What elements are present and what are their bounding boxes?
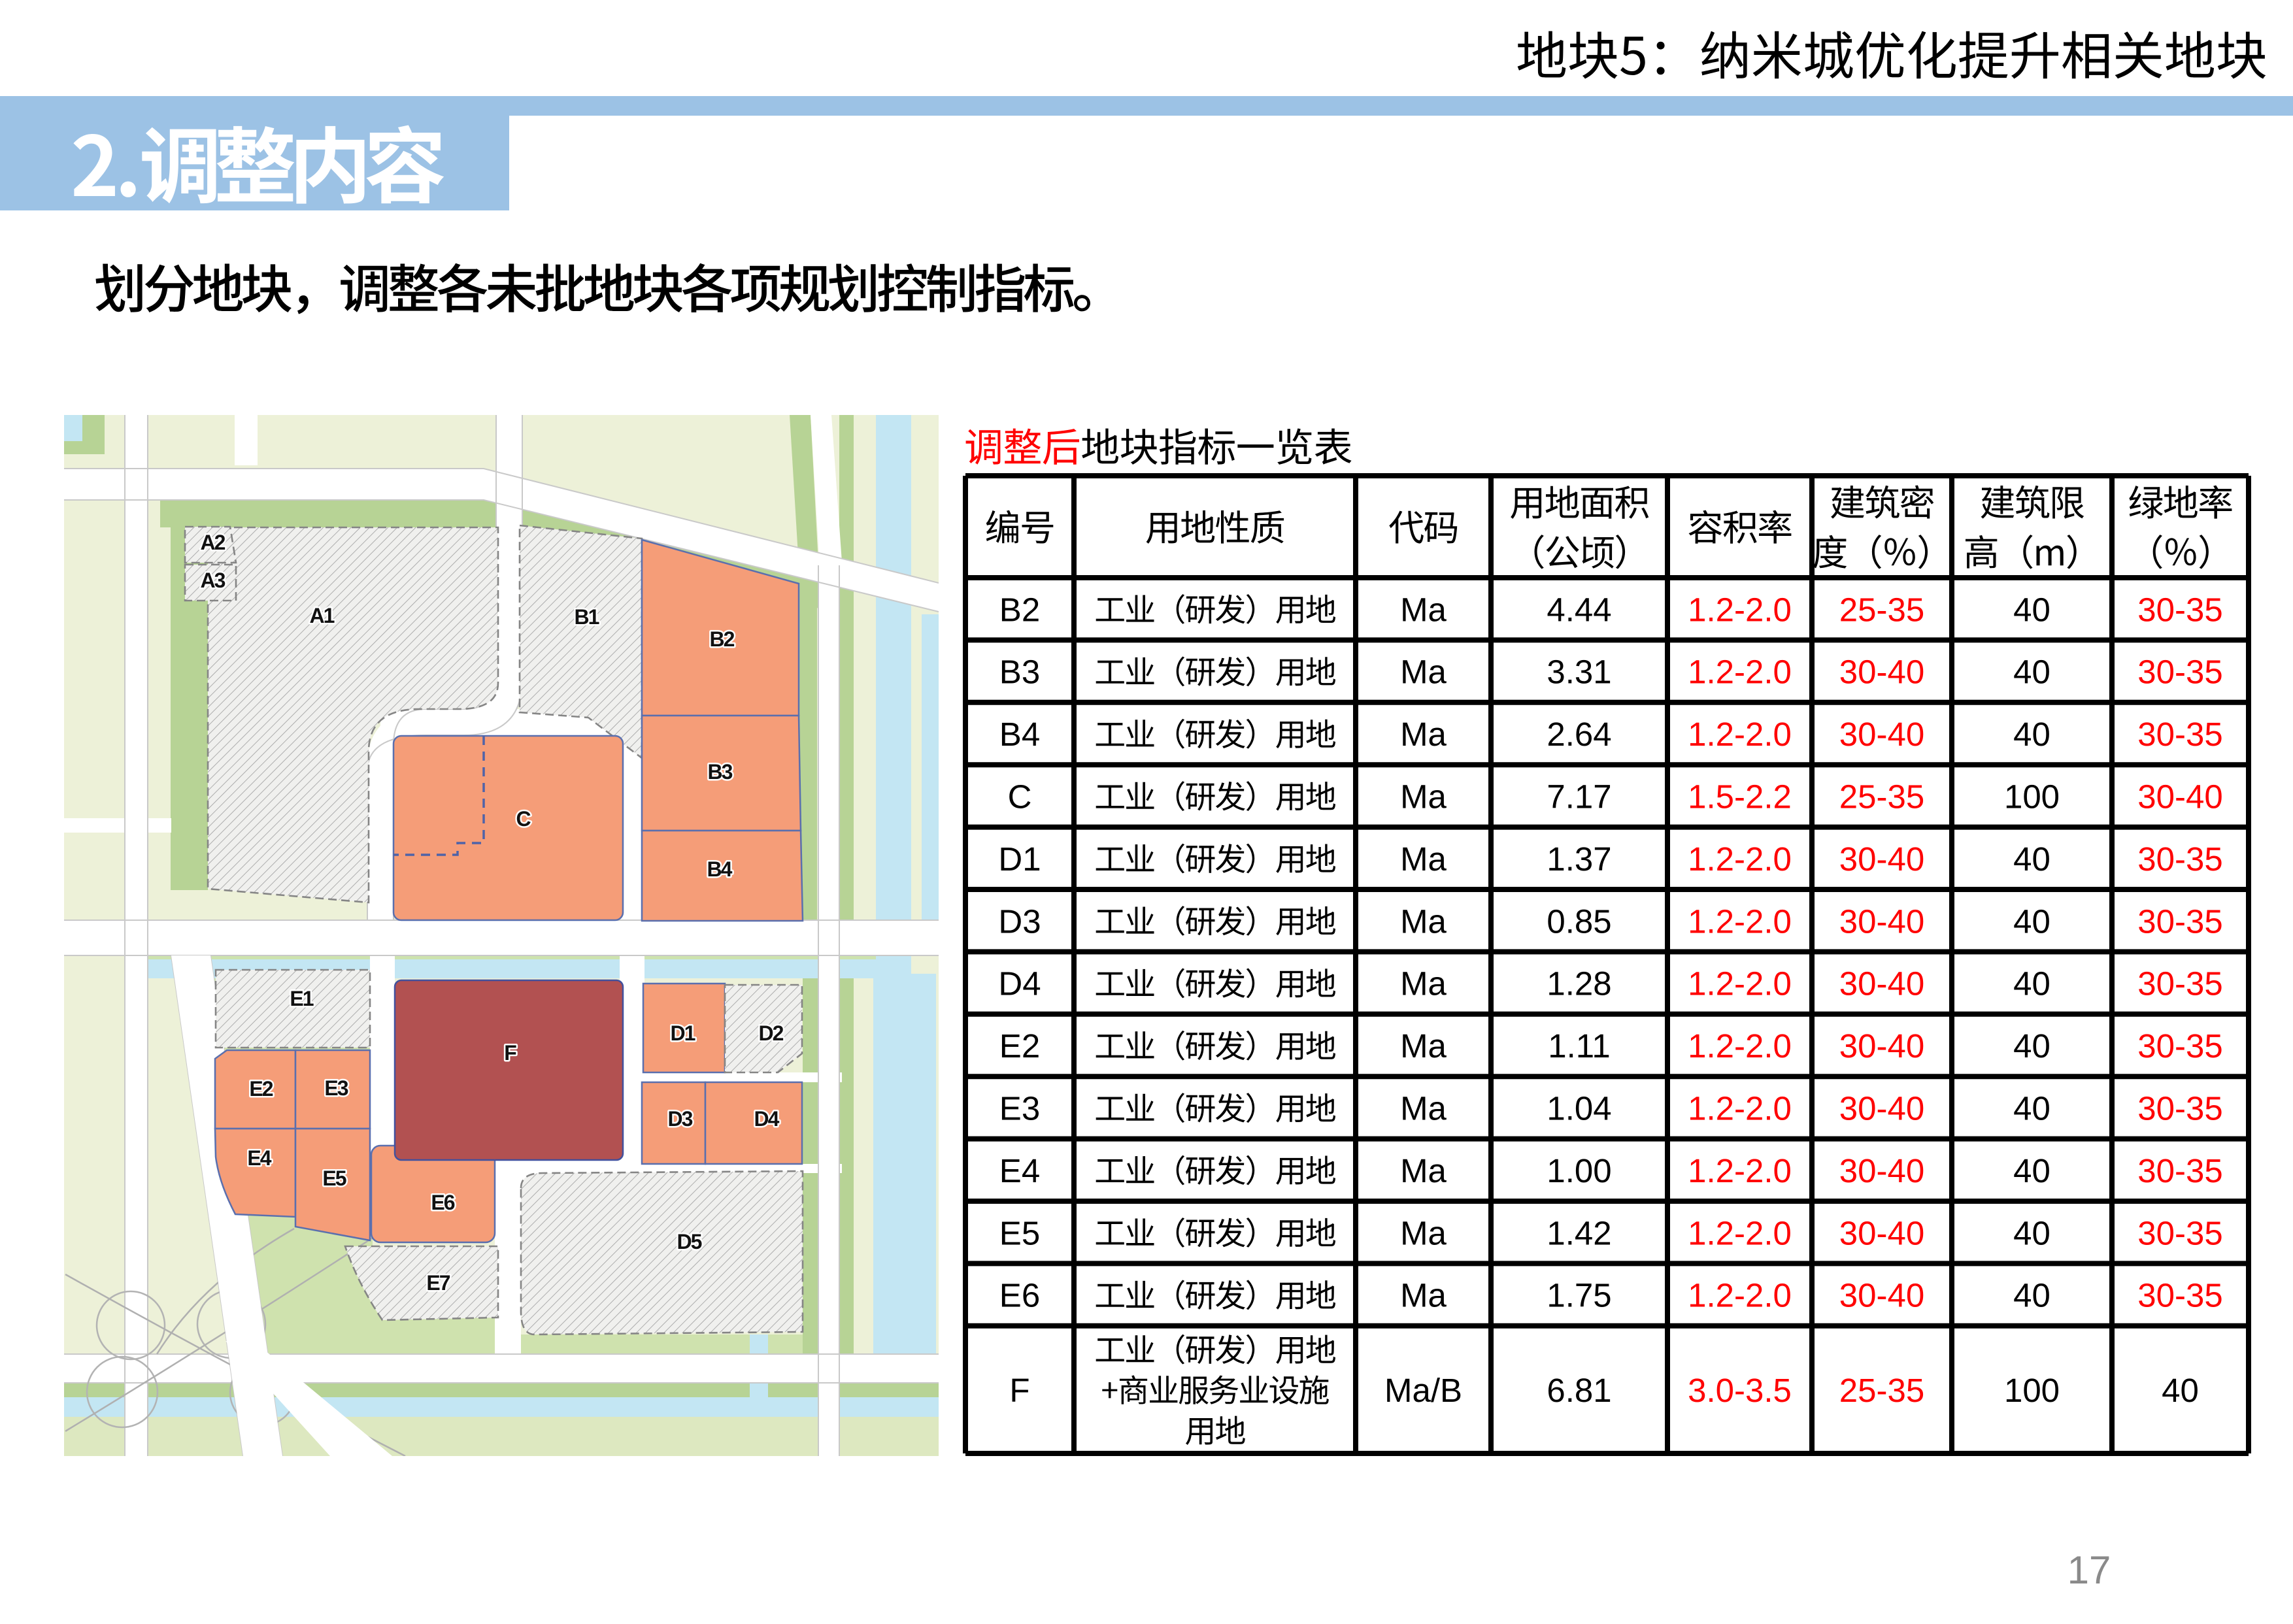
svg-text:30-35: 30-35: [2137, 965, 2222, 1003]
svg-text:25-35: 25-35: [1839, 778, 1924, 816]
svg-text:30-35: 30-35: [2137, 591, 2222, 628]
svg-text:1.2-2.0: 1.2-2.0: [1688, 840, 1792, 878]
svg-text:30-35: 30-35: [2137, 1152, 2222, 1189]
svg-text:Ma: Ma: [1400, 840, 1447, 878]
svg-text:B4: B4: [707, 857, 733, 881]
svg-text:3.31: 3.31: [1547, 654, 1611, 691]
svg-text:30-35: 30-35: [2137, 1027, 2222, 1065]
svg-text:40: 40: [2013, 1152, 2050, 1189]
svg-text:30-35: 30-35: [2137, 654, 2222, 691]
svg-text:Ma: Ma: [1400, 778, 1447, 816]
svg-text:C: C: [1008, 778, 1032, 816]
svg-text:30-35: 30-35: [2137, 1277, 2222, 1314]
svg-text:40: 40: [2013, 716, 2050, 753]
svg-text:B2: B2: [710, 627, 735, 651]
svg-text:Ma: Ma: [1400, 654, 1447, 691]
svg-text:1.28: 1.28: [1547, 965, 1611, 1003]
svg-text:1.2-2.0: 1.2-2.0: [1688, 965, 1792, 1003]
svg-text:D1: D1: [998, 840, 1041, 878]
svg-text:40: 40: [2013, 1277, 2050, 1314]
svg-text:30-40: 30-40: [1839, 1027, 1924, 1065]
svg-text:F: F: [1009, 1372, 1029, 1409]
svg-text:A2: A2: [201, 531, 226, 554]
svg-text:D3: D3: [668, 1107, 693, 1131]
svg-text:30-40: 30-40: [1839, 1214, 1924, 1251]
svg-text:6.81: 6.81: [1547, 1372, 1611, 1409]
svg-text:40: 40: [2013, 591, 2050, 628]
svg-text:2.64: 2.64: [1547, 716, 1611, 753]
svg-text:Ma: Ma: [1400, 1027, 1447, 1065]
svg-text:30-35: 30-35: [2137, 716, 2222, 753]
svg-text:C: C: [516, 807, 531, 831]
svg-text:E5: E5: [322, 1167, 346, 1190]
svg-text:40: 40: [2013, 840, 2050, 878]
svg-text:E3: E3: [999, 1090, 1040, 1127]
svg-text:B3: B3: [999, 654, 1040, 691]
svg-text:30-40: 30-40: [1839, 1152, 1924, 1189]
svg-text:30-40: 30-40: [2137, 778, 2222, 816]
svg-text:40: 40: [2013, 965, 2050, 1003]
svg-text:30-40: 30-40: [1839, 903, 1924, 940]
svg-text:30-35: 30-35: [2137, 840, 2222, 878]
svg-text:7.17: 7.17: [1547, 778, 1611, 816]
svg-text:1.2-2.0: 1.2-2.0: [1688, 716, 1792, 753]
svg-text:1.2-2.0: 1.2-2.0: [1688, 1027, 1792, 1065]
svg-text:Ma: Ma: [1400, 716, 1447, 753]
svg-text:E4: E4: [247, 1146, 271, 1170]
svg-text:30-40: 30-40: [1839, 840, 1924, 878]
svg-text:E5: E5: [999, 1214, 1040, 1251]
svg-text:E6: E6: [999, 1277, 1040, 1314]
svg-text:Ma: Ma: [1400, 1277, 1447, 1314]
svg-text:D2: D2: [759, 1021, 784, 1045]
svg-text:40: 40: [2013, 1214, 2050, 1251]
svg-text:1.11: 1.11: [1548, 1027, 1610, 1065]
svg-text:1.00: 1.00: [1547, 1152, 1611, 1189]
svg-text:D1: D1: [671, 1021, 695, 1045]
svg-text:F: F: [504, 1041, 516, 1065]
svg-text:30-40: 30-40: [1839, 1090, 1924, 1127]
svg-text:4.44: 4.44: [1547, 591, 1611, 628]
svg-text:1.2-2.0: 1.2-2.0: [1688, 591, 1792, 628]
svg-text:Ma: Ma: [1400, 1214, 1447, 1251]
svg-text:100: 100: [2004, 1372, 2060, 1409]
svg-text:25-35: 25-35: [1839, 591, 1924, 628]
svg-text:E3: E3: [324, 1076, 348, 1100]
svg-text:D4: D4: [754, 1107, 780, 1131]
svg-text:B1: B1: [575, 605, 599, 629]
svg-text:0.85: 0.85: [1547, 903, 1611, 940]
svg-text:1.04: 1.04: [1547, 1090, 1611, 1127]
svg-text:1.2-2.0: 1.2-2.0: [1688, 1277, 1792, 1314]
svg-text:1.2-2.0: 1.2-2.0: [1688, 1214, 1792, 1251]
svg-text:Ma: Ma: [1400, 1152, 1447, 1189]
svg-text:E2: E2: [999, 1027, 1040, 1065]
svg-text:30-40: 30-40: [1839, 654, 1924, 691]
svg-text:Ma: Ma: [1400, 965, 1447, 1003]
svg-text:30-35: 30-35: [2137, 1214, 2222, 1251]
svg-text:1.37: 1.37: [1547, 840, 1611, 878]
svg-text:40: 40: [2013, 1027, 2050, 1065]
svg-text:17: 17: [2067, 1548, 2111, 1592]
svg-text:1.75: 1.75: [1547, 1277, 1611, 1314]
svg-text:40: 40: [2013, 654, 2050, 691]
svg-text:Ma: Ma: [1400, 1090, 1447, 1127]
svg-text:D5: D5: [677, 1230, 702, 1253]
svg-text:40: 40: [2162, 1372, 2199, 1409]
svg-text:A3: A3: [201, 569, 226, 592]
svg-text:E7: E7: [426, 1271, 450, 1295]
svg-text:E4: E4: [999, 1152, 1040, 1189]
svg-text:1.2-2.0: 1.2-2.0: [1688, 654, 1792, 691]
svg-text:D4: D4: [998, 965, 1041, 1003]
svg-text:B4: B4: [999, 716, 1040, 753]
svg-text:E2: E2: [249, 1077, 273, 1101]
svg-text:B3: B3: [708, 760, 733, 784]
svg-text:1.2-2.0: 1.2-2.0: [1688, 903, 1792, 940]
svg-text:40: 40: [2013, 903, 2050, 940]
svg-text:30-40: 30-40: [1839, 1277, 1924, 1314]
svg-text:1.42: 1.42: [1547, 1214, 1611, 1251]
svg-text:40: 40: [2013, 1090, 2050, 1127]
svg-text:30-40: 30-40: [1839, 965, 1924, 1003]
svg-text:100: 100: [2004, 778, 2060, 816]
svg-text:E6: E6: [431, 1191, 454, 1214]
svg-text:Ma: Ma: [1400, 591, 1447, 628]
svg-text:E1: E1: [290, 987, 313, 1010]
svg-text:30-35: 30-35: [2137, 903, 2222, 940]
svg-text:D3: D3: [998, 903, 1041, 940]
svg-text:30-35: 30-35: [2137, 1090, 2222, 1127]
svg-text:B2: B2: [999, 591, 1040, 628]
svg-text:30-40: 30-40: [1839, 716, 1924, 753]
svg-text:25-35: 25-35: [1839, 1372, 1924, 1409]
svg-text:1.5-2.2: 1.5-2.2: [1688, 778, 1792, 816]
svg-text:3.0-3.5: 3.0-3.5: [1688, 1372, 1792, 1409]
svg-text:1.2-2.0: 1.2-2.0: [1688, 1152, 1792, 1189]
svg-text:Ma: Ma: [1400, 903, 1447, 940]
svg-text:A1: A1: [310, 604, 335, 627]
svg-text:1.2-2.0: 1.2-2.0: [1688, 1090, 1792, 1127]
svg-text:Ma/B: Ma/B: [1384, 1372, 1462, 1409]
